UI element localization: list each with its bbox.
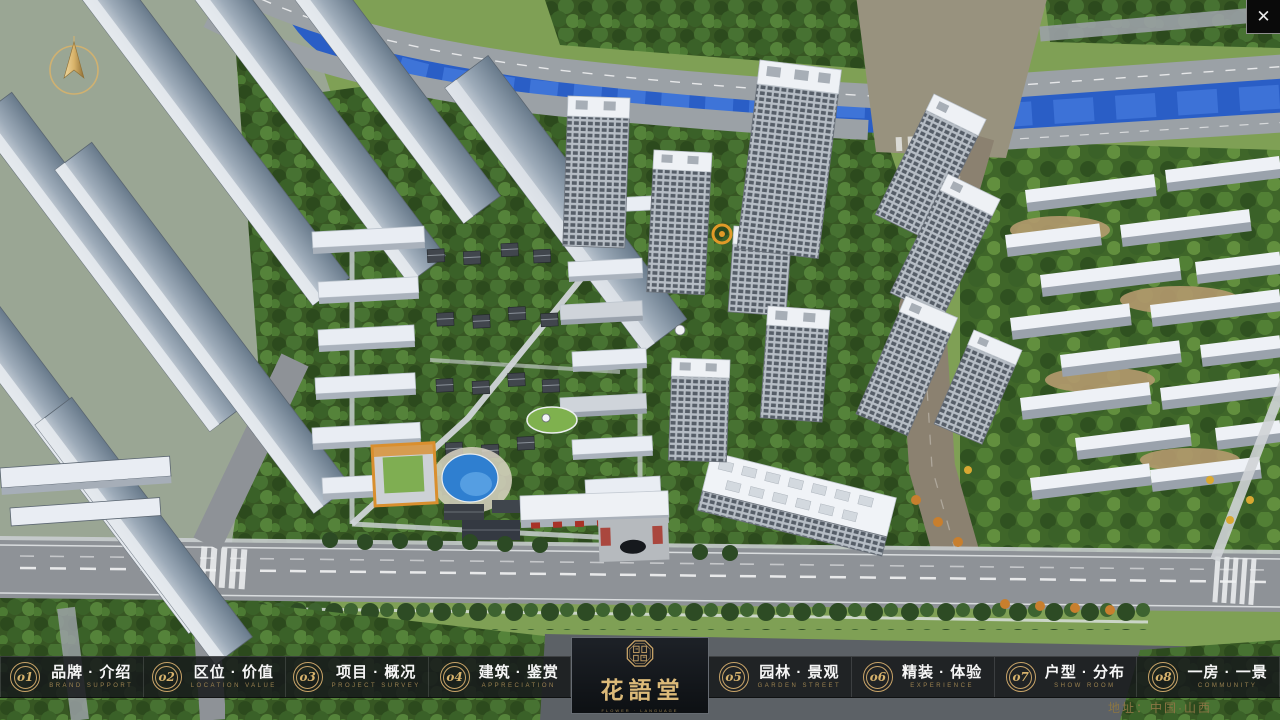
nav-item-label-en: PROJECT SURVEY — [332, 683, 421, 689]
close-icon: ✕ — [1256, 8, 1270, 25]
sales-presentation-window: ✕ o1 品牌 · 介绍 BRAND SUPPORT o2 区位 · 价值 LO… — [0, 0, 1280, 720]
seal-emblem-icon — [623, 638, 657, 669]
nav-item-o6[interactable]: o6 精装 · 体验 EXPERIENCE — [852, 657, 995, 697]
project-address: 地址：中国·山西 — [1108, 699, 1212, 716]
masterplan-render — [0, 0, 1280, 720]
nav-item-badge: o3 — [293, 662, 323, 692]
nav-item-badge: o7 — [1006, 662, 1036, 692]
project-tagline: FLOWER · LANGUAGE — [602, 708, 679, 713]
nav-item-label-zh: 项目 · 概况 — [336, 665, 416, 681]
nav-item-label-zh: 户型 · 分布 — [1045, 665, 1125, 681]
nav-item-o1[interactable]: o1 品牌 · 介绍 BRAND SUPPORT — [0, 657, 144, 697]
nav-item-label-zh: 园林 · 景观 — [759, 665, 839, 681]
clubhouse — [372, 443, 437, 506]
close-button[interactable]: ✕ — [1246, 0, 1280, 34]
nav-item-o3[interactable]: o3 项目 · 概况 PROJECT SURVEY — [286, 657, 429, 697]
nav-item-label-zh: 一房 · 一景 — [1187, 665, 1267, 681]
nav-item-badge: o5 — [719, 662, 749, 692]
nav-item-o5[interactable]: o5 园林 · 景观 GARDEN STREET — [709, 657, 852, 697]
nav-item-label-zh: 建筑 · 鉴赏 — [479, 665, 559, 681]
nav-group-right: o5 园林 · 景观 GARDEN STREET o6 精装 · 体验 EXPE… — [709, 657, 1280, 697]
nav-item-o7[interactable]: o7 户型 · 分布 SHOW ROOM — [995, 657, 1138, 697]
nav-item-badge: o4 — [440, 662, 470, 692]
nav-item-o8[interactable]: o8 一房 · 一景 COMMUNITY — [1137, 657, 1280, 697]
nav-group-left: o1 品牌 · 介绍 BRAND SUPPORT o2 区位 · 价值 LOCA… — [0, 657, 571, 697]
nav-item-label-zh: 精装 · 体验 — [902, 665, 982, 681]
nav-item-o2[interactable]: o2 区位 · 价值 LOCATION VALUE — [144, 657, 287, 697]
nav-item-badge: o1 — [10, 662, 40, 692]
project-name: 花語堂 — [596, 671, 685, 705]
nav-item-label-en: SHOW ROOM — [1054, 683, 1116, 689]
project-logo-panel[interactable]: 花語堂 FLOWER · LANGUAGE — [571, 637, 709, 714]
nav-item-label-en: LOCATION VALUE — [191, 683, 277, 689]
nav-item-badge: o6 — [863, 662, 893, 692]
nav-item-label-en: GARDEN STREET — [758, 683, 842, 689]
nav-item-badge: o2 — [152, 662, 182, 692]
nav-item-label-zh: 品牌 · 介绍 — [51, 665, 131, 681]
nav-item-o4[interactable]: o4 建筑 · 鉴赏 APPRECIATION — [429, 657, 572, 697]
nav-item-label-en: EXPERIENCE — [910, 683, 974, 689]
nav-item-label-en: BRAND SUPPORT — [49, 683, 133, 689]
nav-item-label-en: COMMUNITY — [1198, 683, 1258, 689]
nav-item-label-zh: 区位 · 价值 — [194, 665, 274, 681]
nav-item-label-en: APPRECIATION — [482, 683, 556, 689]
nav-item-badge: o8 — [1148, 662, 1178, 692]
compass-icon — [42, 34, 106, 102]
garden-oval — [527, 407, 577, 433]
main-entrance — [598, 518, 669, 562]
